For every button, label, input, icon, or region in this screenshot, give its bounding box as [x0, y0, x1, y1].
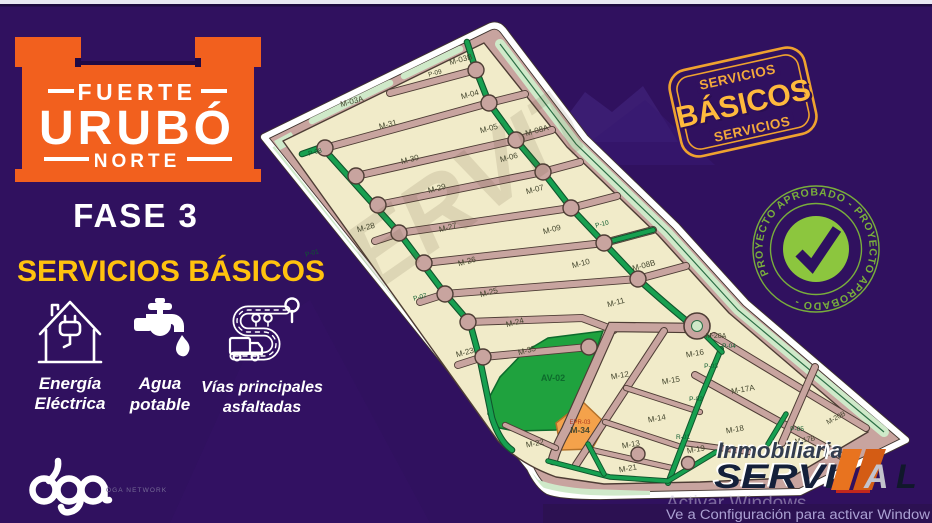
svg-text:Energía: Energía [39, 374, 101, 393]
svg-text:AV-02: AV-02 [541, 373, 565, 383]
svg-text:SERVICIOS BÁSICOS: SERVICIOS BÁSICOS [17, 254, 325, 288]
svg-text:FASE 3: FASE 3 [73, 197, 199, 234]
svg-text:Ve a Configuración para activa: Ve a Configuración para activar Window [666, 507, 930, 522]
svg-text:P-03: P-03 [704, 363, 718, 370]
svg-text:M-34: M-34 [570, 425, 590, 435]
svg-text:URUBÓ: URUBÓ [39, 100, 235, 155]
svg-text:P-02: P-02 [689, 396, 703, 403]
svg-text:R-01: R-01 [676, 434, 690, 441]
svg-text:M-20A: M-20A [706, 333, 727, 340]
svg-text:SERVI: SERVI [714, 458, 838, 496]
svg-text:OGA NETWORK: OGA NETWORK [106, 487, 167, 494]
svg-text:Vías principales: Vías principales [201, 379, 323, 396]
svg-text:Agua: Agua [138, 374, 182, 393]
svg-text:L: L [896, 458, 917, 496]
svg-text:P-04: P-04 [722, 343, 736, 350]
svg-text:NORTE: NORTE [94, 151, 181, 172]
svg-text:potable: potable [129, 395, 190, 414]
svg-text:P-05: P-05 [790, 426, 804, 433]
svg-text:Eléctrica: Eléctrica [35, 394, 106, 413]
svg-text:asfaltadas: asfaltadas [223, 399, 301, 416]
